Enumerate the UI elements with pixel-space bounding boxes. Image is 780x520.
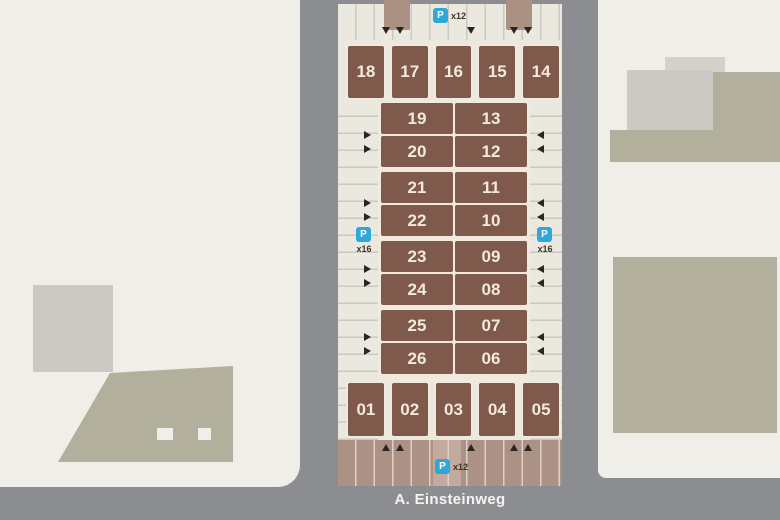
arrow-right-icon	[364, 347, 371, 355]
arrow-down-icon	[467, 27, 475, 34]
arrow-down-icon	[510, 27, 518, 34]
street-label: A. Einsteinweg	[338, 491, 562, 508]
arrow-up-icon	[396, 444, 404, 451]
inner-plot-row: 2606	[381, 343, 527, 374]
building-khaki-left	[58, 366, 233, 462]
parking-icon-left: P	[356, 227, 371, 242]
plot-05[interactable]: 05	[521, 381, 561, 438]
arrow-left-icon	[537, 199, 544, 207]
plot-11[interactable]: 11	[455, 172, 527, 203]
entry-driveway-top-left	[384, 0, 410, 30]
campsite-map-screenshot: P x12 P x16 P x16 P x12 1817161514 19132…	[0, 0, 780, 520]
plot-14[interactable]: 14	[521, 44, 561, 100]
arrow-left-icon	[537, 265, 544, 273]
plot-16[interactable]: 16	[434, 44, 474, 100]
plot-17[interactable]: 17	[390, 44, 430, 100]
building-window	[198, 428, 211, 440]
arrow-left-icon	[537, 279, 544, 287]
plot-21[interactable]: 21	[381, 172, 453, 203]
inner-plot-row: 2210	[381, 205, 527, 236]
plot-09[interactable]: 09	[455, 241, 527, 272]
plot-15[interactable]: 15	[477, 44, 517, 100]
plot-24[interactable]: 24	[381, 274, 453, 305]
arrow-down-icon	[396, 27, 404, 34]
arrow-up-icon	[510, 444, 518, 451]
parking-icon-right: P	[537, 227, 552, 242]
building-khaki-right-large	[613, 257, 777, 433]
inner-plot-row: 2012	[381, 136, 527, 167]
entry-driveway-top-right	[506, 0, 532, 30]
arrow-left-icon	[537, 347, 544, 355]
inner-plot-row: 2309	[381, 241, 527, 272]
building-gray-right	[627, 70, 713, 133]
parking-count-left: x16	[352, 244, 376, 254]
city-block-left	[0, 0, 300, 487]
arrow-right-icon	[364, 279, 371, 287]
city-block-right	[598, 0, 780, 478]
plot-12[interactable]: 12	[455, 136, 527, 167]
arrow-left-icon	[537, 333, 544, 341]
arrow-up-icon	[524, 444, 532, 451]
arrow-left-icon	[537, 213, 544, 221]
plot-10[interactable]: 10	[455, 205, 527, 236]
plot-25[interactable]: 25	[381, 310, 453, 341]
arrow-right-icon	[364, 199, 371, 207]
plot-19[interactable]: 19	[381, 103, 453, 134]
plot-22[interactable]: 22	[381, 205, 453, 236]
parking-icon-bottom: P	[435, 459, 450, 474]
plot-26[interactable]: 26	[381, 343, 453, 374]
arrow-up-icon	[467, 444, 475, 451]
plot-02[interactable]: 02	[390, 381, 430, 438]
plot-20[interactable]: 20	[381, 136, 453, 167]
building-gray-left	[33, 285, 113, 372]
parking-count-top: x12	[451, 11, 466, 21]
plot-04[interactable]: 04	[477, 381, 517, 438]
plot-03[interactable]: 03	[434, 381, 474, 438]
plot-23[interactable]: 23	[381, 241, 453, 272]
campsite-map: P x12 P x16 P x16 P x12 1817161514 19132…	[338, 0, 562, 486]
arrow-down-icon	[524, 27, 532, 34]
arrow-left-icon	[537, 145, 544, 153]
arrow-down-icon	[382, 27, 390, 34]
plot-row-top: 1817161514	[346, 44, 561, 100]
inner-plot-row: 1913	[381, 103, 527, 134]
parking-icon-top: P	[433, 8, 448, 23]
arrow-right-icon	[364, 131, 371, 139]
arrow-right-icon	[364, 265, 371, 273]
arrow-right-icon	[364, 333, 371, 341]
plot-row-bottom: 0102030405	[346, 381, 561, 438]
parking-count-bottom: x12	[453, 462, 468, 472]
inner-plot-block: 19132012211122102309240825072606	[378, 100, 530, 381]
inner-plot-row: 2507	[381, 310, 527, 341]
plot-07[interactable]: 07	[455, 310, 527, 341]
plot-06[interactable]: 06	[455, 343, 527, 374]
parking-count-right: x16	[533, 244, 557, 254]
arrow-left-icon	[537, 131, 544, 139]
inner-plot-row: 2408	[381, 274, 527, 305]
building-window	[157, 428, 173, 440]
plot-18[interactable]: 18	[346, 44, 386, 100]
plot-13[interactable]: 13	[455, 103, 527, 134]
plot-01[interactable]: 01	[346, 381, 386, 438]
arrow-right-icon	[364, 145, 371, 153]
arrow-up-icon	[382, 444, 390, 451]
inner-plot-row: 2111	[381, 172, 527, 203]
arrow-right-icon	[364, 213, 371, 221]
plot-08[interactable]: 08	[455, 274, 527, 305]
building-khaki-right	[610, 130, 780, 162]
